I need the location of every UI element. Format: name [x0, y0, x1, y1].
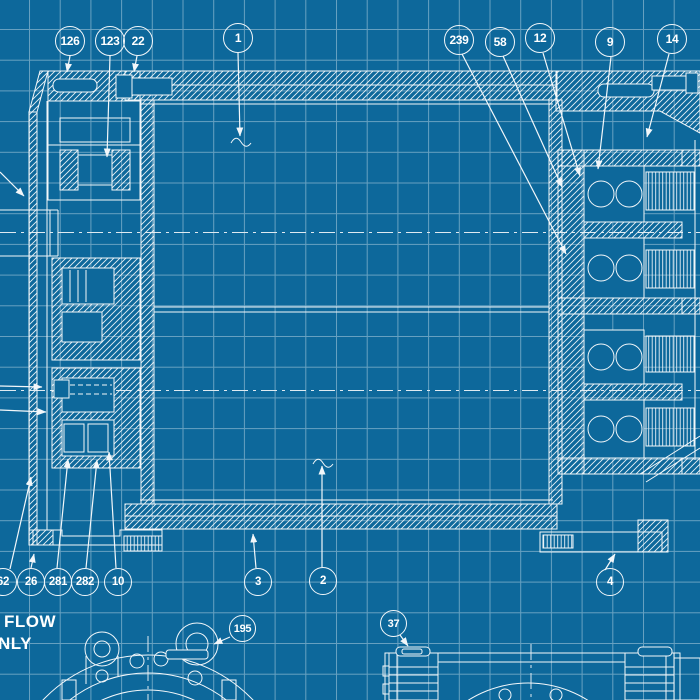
balloon-26: 26	[17, 568, 45, 596]
balloon-22: 22	[123, 26, 153, 56]
blueprint-canvas: 126 123 22 1 239 58 12 9 14 62 26 281 28…	[0, 0, 700, 700]
threaded-shaft-end	[646, 336, 694, 372]
blueprint-drawing	[0, 0, 700, 700]
balloon-3: 3	[244, 568, 272, 596]
balloon-282: 282	[71, 568, 99, 596]
balloon-126: 126	[55, 26, 85, 56]
eyebolt-right	[638, 647, 672, 656]
balloon-195: 195	[229, 615, 256, 642]
threaded-shaft-end	[646, 250, 694, 288]
air-flow-note-line1: FLOW	[4, 611, 56, 633]
balloon-123: 123	[95, 26, 125, 56]
air-flow-note-line2: NLY	[0, 633, 32, 655]
handle-bracket	[166, 650, 208, 659]
top-bolt-left	[116, 75, 172, 98]
balloon-12: 12	[525, 23, 555, 53]
threaded-shaft-end	[646, 408, 694, 446]
balloon-239: 239	[444, 25, 474, 55]
drum-shell-top	[125, 71, 557, 104]
balloon-2: 2	[309, 567, 337, 595]
balloon-4: 4	[596, 568, 624, 596]
balloon-58: 58	[485, 27, 515, 57]
eyebolt-left	[396, 647, 430, 656]
left-end-disc	[141, 100, 154, 504]
threaded-shaft-end	[646, 172, 694, 210]
balloon-281: 281	[44, 568, 72, 596]
balloon-9: 9	[595, 27, 625, 57]
top-slot	[53, 79, 97, 92]
balloon-14: 14	[657, 24, 687, 54]
drum-shell-bottom	[125, 500, 557, 529]
balloon-37: 37	[380, 610, 407, 637]
bolt-head-left	[54, 380, 69, 398]
balloon-1: 1	[223, 23, 253, 53]
balloon-10: 10	[104, 568, 132, 596]
